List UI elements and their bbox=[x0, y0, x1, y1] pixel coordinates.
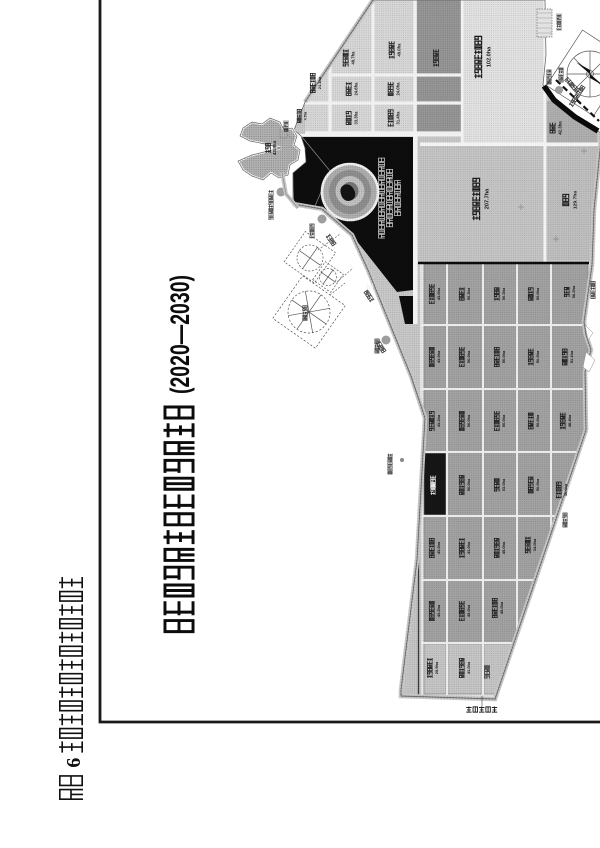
svg-text:50.0ha: 50.0ha bbox=[466, 350, 471, 363]
svg-text:50.0ha: 50.0ha bbox=[535, 478, 540, 491]
svg-text:4.7ha: 4.7ha bbox=[303, 112, 307, 121]
svg-text:21.1ha: 21.1ha bbox=[317, 76, 322, 89]
svg-text:129.7ha: 129.7ha bbox=[573, 191, 579, 209]
svg-text:50.3ha: 50.3ha bbox=[501, 287, 506, 300]
svg-text:49.0ha: 49.0ha bbox=[396, 43, 401, 57]
svg-text:50.0ha: 50.0ha bbox=[501, 350, 506, 363]
svg-text:42.3ha: 42.3ha bbox=[558, 121, 563, 135]
svg-text:43.0ha: 43.0ha bbox=[436, 541, 441, 554]
svg-text:43.0ha: 43.0ha bbox=[436, 287, 441, 300]
svg-text:31.4ha: 31.4ha bbox=[395, 111, 400, 125]
svg-text:(2020—2030): (2020—2030) bbox=[165, 275, 195, 394]
svg-text:33.3ha: 33.3ha bbox=[353, 111, 358, 125]
svg-text:56.2ha: 56.2ha bbox=[571, 285, 576, 298]
svg-text:102.0ha: 102.0ha bbox=[486, 46, 492, 67]
svg-text:45.0ha: 45.0ha bbox=[466, 604, 471, 617]
svg-text:50.0ha: 50.0ha bbox=[466, 478, 471, 491]
svg-text:36.0ha: 36.0ha bbox=[563, 483, 568, 496]
svg-text:50.0ha: 50.0ha bbox=[535, 350, 540, 363]
svg-text:24.6ha: 24.6ha bbox=[353, 82, 358, 96]
svg-text:51.1ha: 51.1ha bbox=[569, 350, 574, 363]
svg-text:24.0ha: 24.0ha bbox=[395, 82, 400, 96]
svg-text:41.0ha: 41.0ha bbox=[466, 541, 471, 554]
svg-text:207.7ha: 207.7ha bbox=[484, 188, 490, 209]
svg-text:50.3ha: 50.3ha bbox=[466, 287, 471, 300]
svg-text:43.2ha: 43.2ha bbox=[436, 604, 441, 617]
svg-text:50.0ha: 50.0ha bbox=[535, 414, 540, 427]
svg-text:49.7ha: 49.7ha bbox=[350, 51, 355, 65]
svg-text:53.0ha: 53.0ha bbox=[501, 478, 506, 491]
svg-text:43.8ha: 43.8ha bbox=[272, 140, 277, 155]
svg-text:50.0ha: 50.0ha bbox=[466, 414, 471, 427]
svg-text:41.0ha: 41.0ha bbox=[466, 661, 471, 674]
svg-text:43.0ha: 43.0ha bbox=[436, 350, 441, 363]
svg-text:6: 6 bbox=[63, 758, 85, 768]
svg-text:25.9ha: 25.9ha bbox=[434, 661, 439, 674]
svg-text:50.0ha: 50.0ha bbox=[501, 414, 506, 427]
svg-text:50.0ha: 50.0ha bbox=[535, 287, 540, 300]
svg-text:43.2ha: 43.2ha bbox=[436, 414, 441, 427]
svg-text:48.4ha: 48.4ha bbox=[567, 414, 572, 427]
svg-text:34.0ha: 34.0ha bbox=[532, 538, 537, 551]
svg-text:45.0ha: 45.0ha bbox=[499, 601, 504, 614]
svg-text:45.0ha: 45.0ha bbox=[501, 541, 506, 554]
